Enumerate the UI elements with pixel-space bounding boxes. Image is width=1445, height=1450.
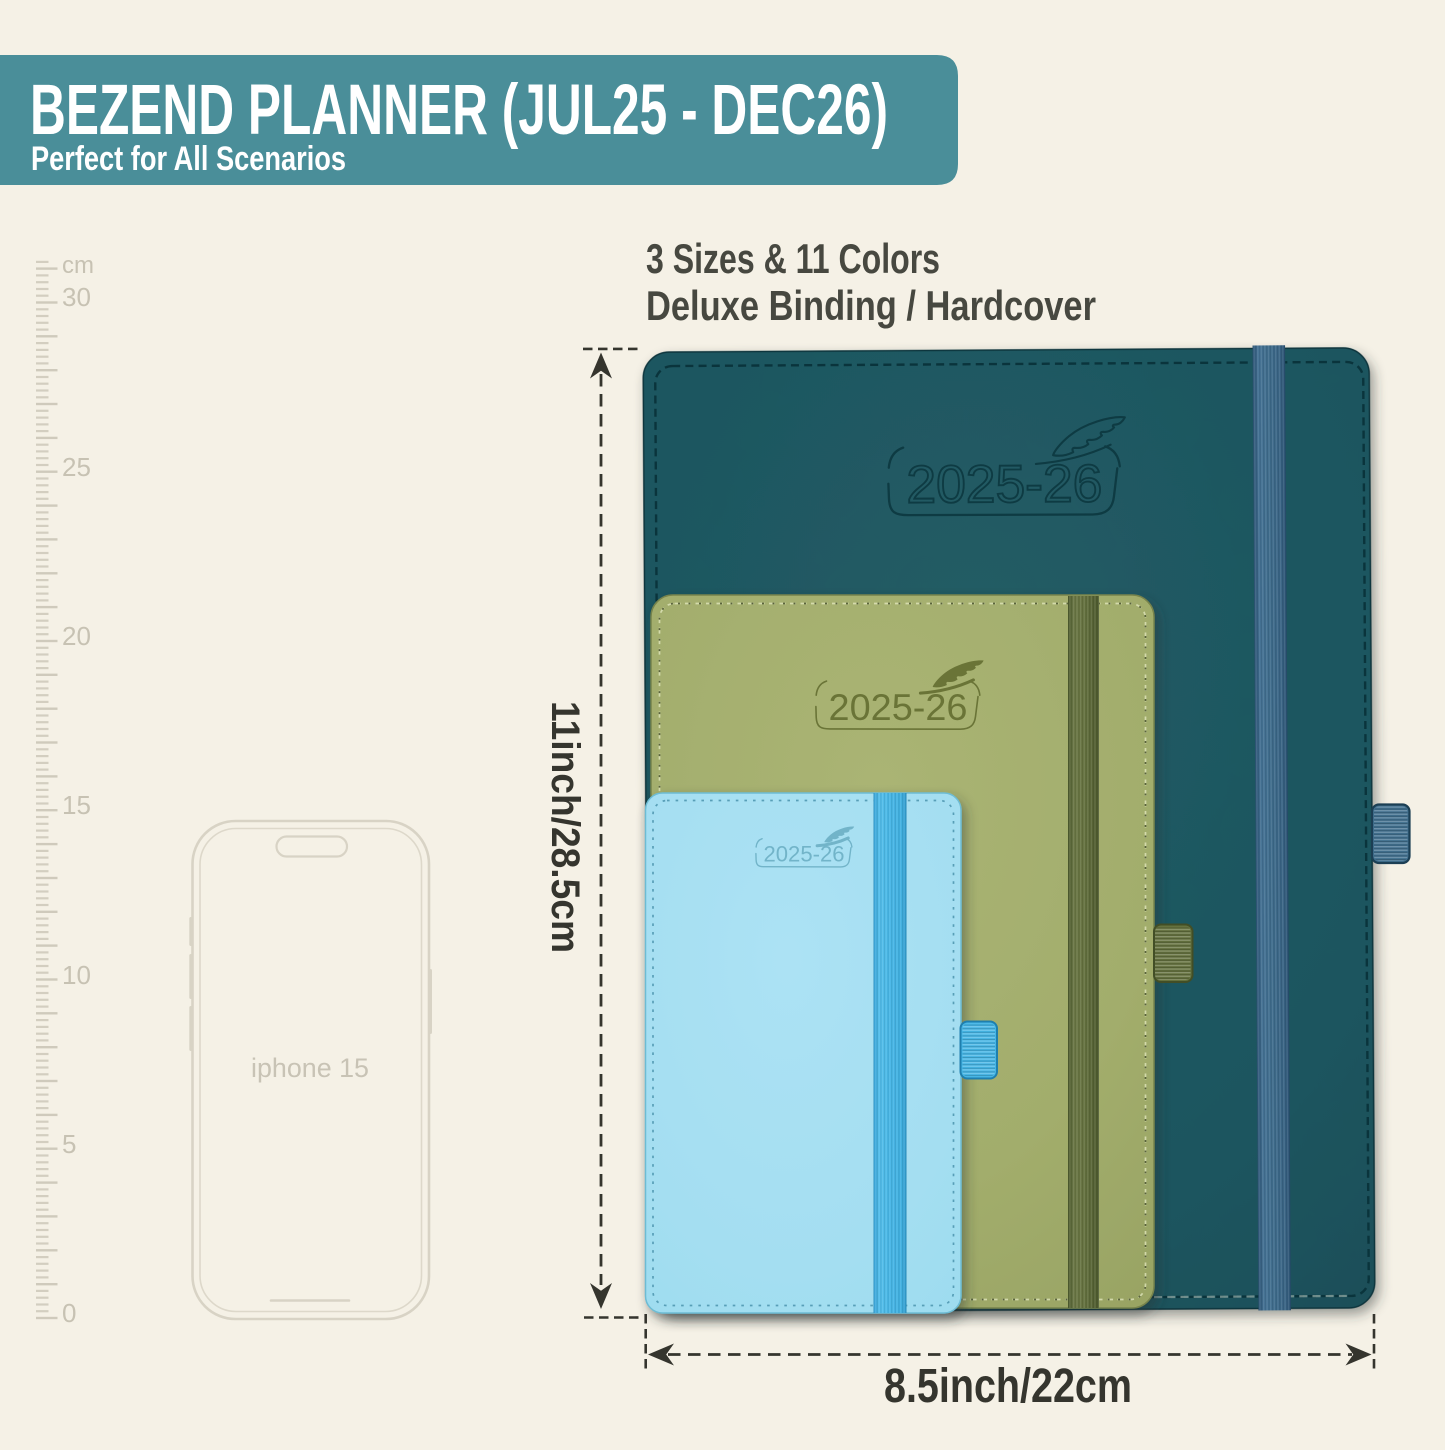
svg-text:8.5inch/22cm: 8.5inch/22cm	[884, 1360, 1132, 1413]
svg-text:10: 10	[62, 960, 91, 990]
svg-text:2025-26: 2025-26	[829, 686, 968, 728]
svg-text:5: 5	[62, 1129, 76, 1159]
svg-text:iphone 15: iphone 15	[251, 1053, 369, 1083]
svg-text:Deluxe Binding / Hardcover: Deluxe Binding / Hardcover	[646, 282, 1096, 329]
svg-text:BEZEND PLANNER (JUL25 - DEC26): BEZEND PLANNER (JUL25 - DEC26)	[30, 71, 888, 150]
svg-text:cm: cm	[62, 252, 94, 279]
svg-text:2025-26: 2025-26	[764, 842, 845, 867]
svg-text:3 Sizes & 11 Colors: 3 Sizes & 11 Colors	[646, 235, 940, 282]
svg-text:15: 15	[62, 790, 91, 820]
svg-text:20: 20	[62, 621, 91, 651]
svg-text:2025-26: 2025-26	[906, 454, 1102, 514]
svg-text:30: 30	[62, 282, 91, 312]
svg-text:25: 25	[62, 452, 91, 482]
svg-text:0: 0	[62, 1298, 76, 1328]
svg-text:11inch/28.5cm: 11inch/28.5cm	[543, 701, 587, 953]
svg-text:Perfect for All Scenarios: Perfect for All Scenarios	[31, 140, 346, 178]
